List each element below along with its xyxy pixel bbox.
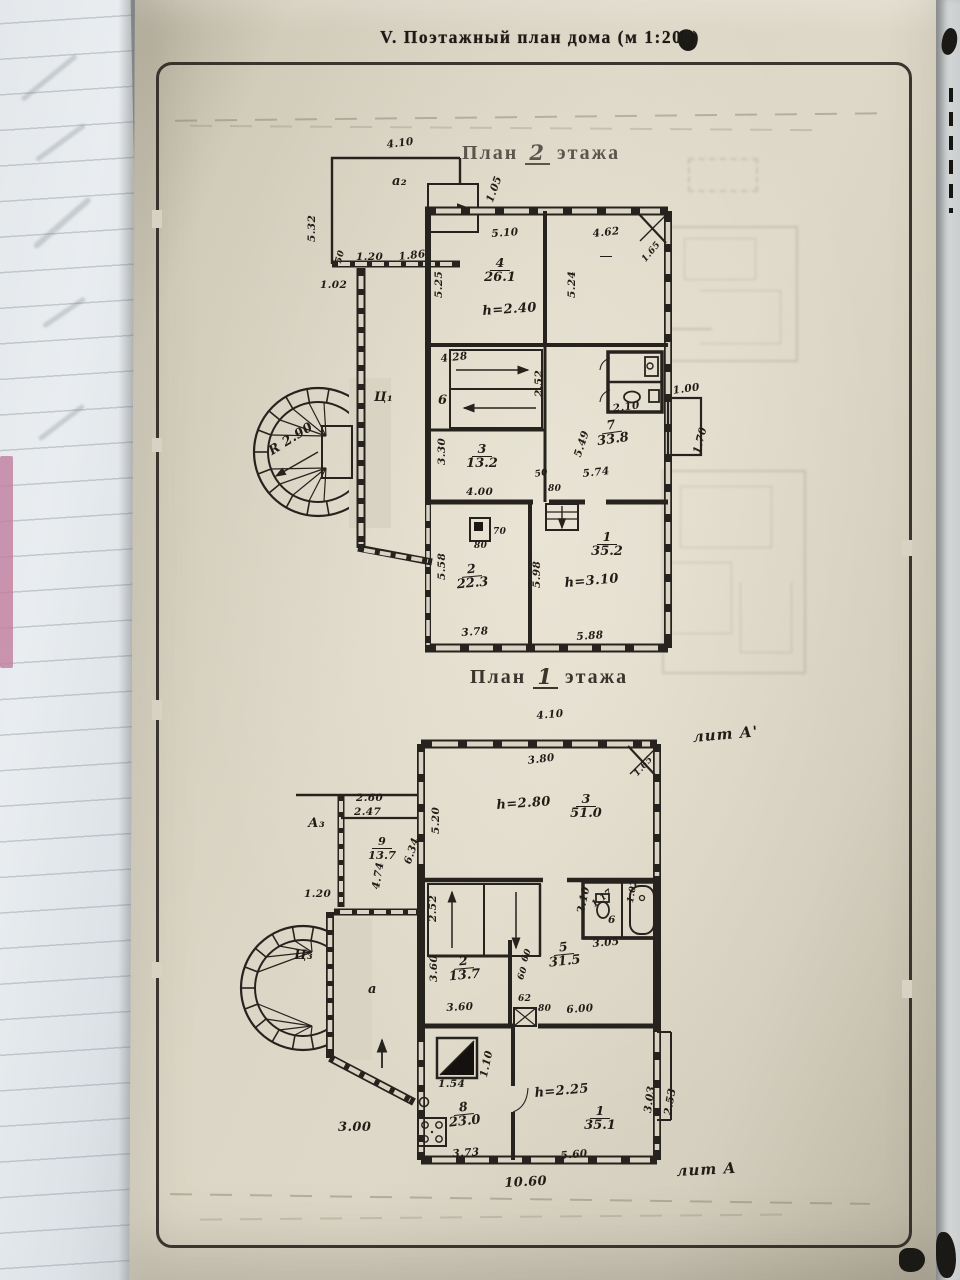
- room7-label: 7 33.8: [588, 415, 636, 449]
- room9-number: 9: [372, 836, 392, 849]
- plan1-title: План1этажа: [470, 666, 628, 689]
- plan2-floor-number: 2: [525, 144, 550, 165]
- dim-stairs-side: 2.52: [533, 370, 545, 397]
- tower-label: Ц₃: [294, 948, 313, 963]
- dim-flue-80: 80: [474, 541, 487, 551]
- room6-number: 6: [608, 914, 616, 926]
- room4-number: 4: [490, 256, 511, 271]
- dim-oven: 1.54: [438, 1078, 465, 1090]
- plan2-title: План2этажа: [462, 142, 620, 165]
- plan2-title-word1: План: [462, 142, 518, 165]
- dim-annex-247: 2.47: [354, 806, 381, 818]
- room3-number: 3: [576, 792, 597, 807]
- dim-flue-70: 70: [493, 527, 506, 537]
- dim-left-300: 3.00: [338, 1120, 371, 1135]
- room9-label: 9 13.7: [364, 836, 400, 861]
- dim-stairs-side: 2.52: [427, 895, 439, 922]
- dim-flue-62: 62: [518, 994, 531, 1004]
- room1-number: 1: [590, 1104, 611, 1119]
- room3-number: 3: [472, 442, 493, 457]
- dim-room3-bottom: 4.00: [466, 486, 493, 498]
- dim-room4-left: 5.25: [433, 271, 445, 298]
- liter-a-label: лит А: [676, 1159, 737, 1180]
- room3-label: 3 51.0: [566, 792, 606, 821]
- room8-label: 8 23.0: [443, 1098, 486, 1131]
- dim-room45-mid: 5.24: [566, 271, 578, 298]
- room5-number: [600, 256, 612, 257]
- room5-label: [584, 256, 628, 257]
- room1-area: 35.1: [578, 1119, 622, 1133]
- dim-room8-bottom: 3.73: [452, 1146, 480, 1160]
- scanned-floor-plan-photo: V. Поэтажный план дома (м 1:200): [0, 0, 960, 1280]
- room1-area: 35.2: [584, 545, 630, 559]
- room5-label: 5 31.5: [543, 938, 586, 971]
- plan1-title-word2: этажа: [565, 666, 628, 689]
- dim-80: 80: [538, 1004, 551, 1014]
- dim-102: 1.02: [320, 279, 347, 291]
- room1-label: 1 35.1: [578, 1104, 622, 1133]
- dim-room5-bottom: 6.00: [566, 1002, 594, 1016]
- dim-room2-left: 5.58: [436, 553, 448, 580]
- dim-120: 1.20: [356, 251, 383, 263]
- dim-top-width: 4.10: [536, 708, 564, 722]
- dim-120: 1.20: [304, 888, 331, 900]
- dim-room3-left: 5.20: [430, 807, 442, 834]
- dim-room4-top: 5.10: [491, 226, 519, 240]
- room9-area: 13.7: [364, 849, 400, 861]
- dim-room12-mid: 5.98: [531, 561, 543, 588]
- dim-left-height: 5.32: [306, 215, 318, 242]
- veranda-label: а: [368, 982, 377, 997]
- room1-label: 1 35.2: [584, 530, 630, 559]
- room6-number: 6: [438, 393, 447, 408]
- room3-area: 13.2: [462, 457, 502, 471]
- dim-room2-bottom: 3.60: [446, 1001, 474, 1014]
- dim-room1-bottom: 5.60: [560, 1148, 588, 1162]
- room4-label: 4 26.1: [478, 256, 522, 285]
- dim-total-width: 10.60: [504, 1174, 547, 1191]
- dim-door-80: 80: [548, 484, 561, 494]
- room1-number: 1: [597, 530, 618, 545]
- room3-area: 51.0: [566, 807, 606, 821]
- dim-annex-260: 2.60: [356, 792, 383, 804]
- annex-label: А₃: [308, 816, 325, 831]
- plan2-title-word2: этажа: [557, 142, 620, 165]
- dim-room1-bottom: 5.88: [576, 629, 604, 643]
- terrace-label: а₂: [392, 174, 407, 189]
- room2-label: 2 13.7: [443, 952, 485, 984]
- dim-room3-left: 3.30: [436, 438, 448, 465]
- room3-label: 3 13.2: [462, 442, 502, 471]
- hall-label: Ц₁: [374, 390, 393, 405]
- room2-label: 2 22.3: [447, 560, 497, 593]
- dim-bath-bottom: 3.05: [592, 936, 620, 950]
- room4-area: 26.1: [478, 271, 522, 285]
- dim-room2-bottom: 3.78: [461, 625, 489, 639]
- dim-room2-left: 3.60: [428, 955, 440, 982]
- plan1-floor-number: 1: [533, 668, 558, 689]
- floor-plans-drawing: [0, 0, 960, 1280]
- plan1-title-word1: План: [470, 666, 526, 689]
